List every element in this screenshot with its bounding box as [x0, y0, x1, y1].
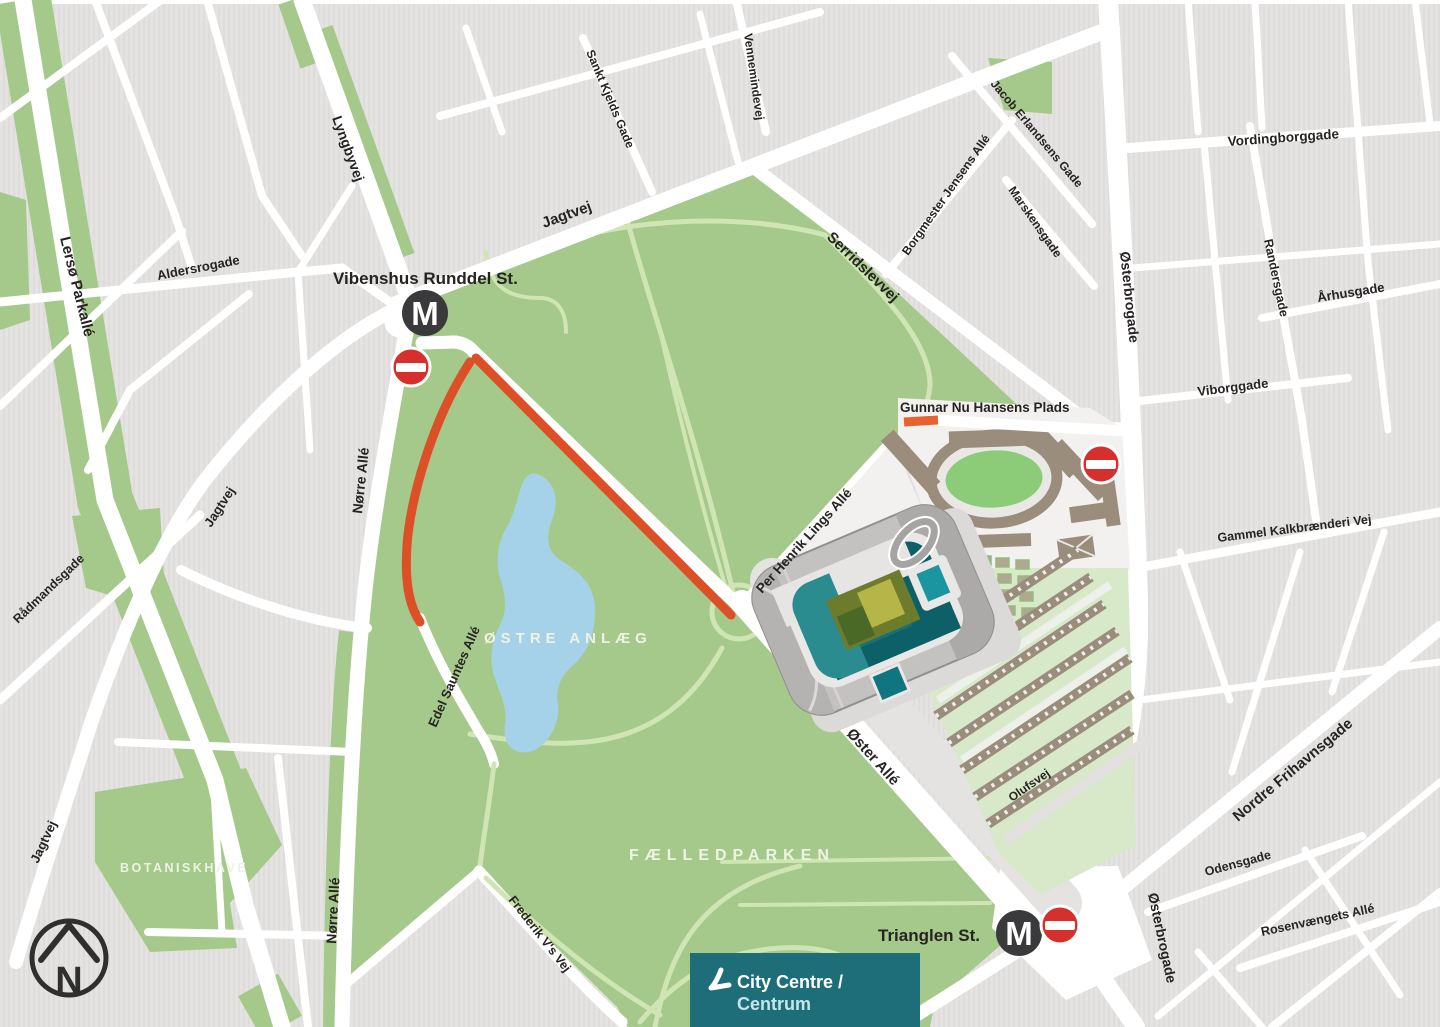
svg-text:Vibenshus Runddel St.: Vibenshus Runddel St. — [333, 269, 518, 288]
svg-text:City Centre /: City Centre / — [737, 972, 843, 992]
svg-text:Gunnar Nu Hansens Plads: Gunnar Nu Hansens Plads — [900, 400, 1070, 415]
svg-text:BOTANISKHAVE: BOTANISKHAVE — [120, 861, 248, 875]
svg-text:Centrum: Centrum — [737, 994, 811, 1014]
svg-text:Trianglen St.: Trianglen St. — [878, 926, 980, 945]
svg-text:M: M — [1005, 915, 1033, 952]
svg-text:ØSTRE ANLÆG: ØSTRE ANLÆG — [484, 630, 652, 647]
svg-text:N: N — [55, 960, 82, 1002]
svg-text:M: M — [411, 295, 439, 332]
svg-text:FÆLLEDPARKEN: FÆLLEDPARKEN — [629, 847, 835, 864]
